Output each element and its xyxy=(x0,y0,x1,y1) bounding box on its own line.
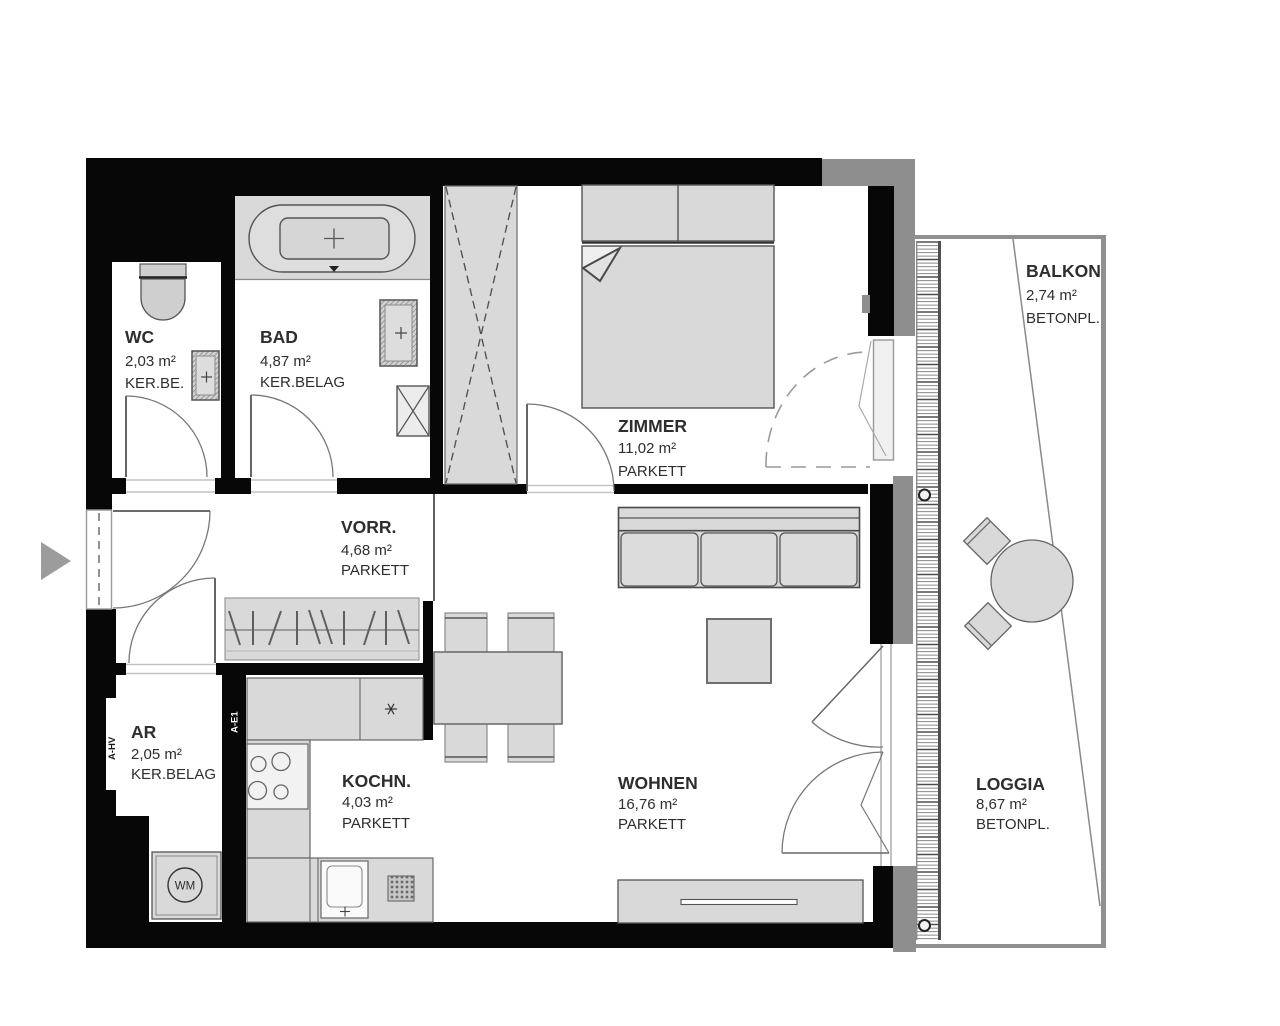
svg-text:PARKETT: PARKETT xyxy=(342,815,410,832)
svg-text:AR: AR xyxy=(131,722,157,742)
svg-text:VORR.: VORR. xyxy=(341,517,396,537)
svg-text:WM: WM xyxy=(175,881,195,893)
svg-text:PARKETT: PARKETT xyxy=(618,463,686,480)
svg-text:KOCHN.: KOCHN. xyxy=(342,771,411,791)
svg-text:2,05 m²: 2,05 m² xyxy=(131,746,182,763)
svg-text:KER.BELAG: KER.BELAG xyxy=(260,374,345,391)
svg-text:LOGGIA: LOGGIA xyxy=(976,774,1045,794)
svg-text:8,67 m²: 8,67 m² xyxy=(976,796,1027,813)
svg-text:A-E1: A-E1 xyxy=(230,711,241,733)
svg-text:BAD: BAD xyxy=(260,327,298,347)
svg-text:WC: WC xyxy=(125,327,155,347)
svg-text:KER.BE.: KER.BE. xyxy=(125,375,184,392)
svg-text:WOHNEN: WOHNEN xyxy=(618,773,698,793)
svg-text:2,03 m²: 2,03 m² xyxy=(125,353,176,370)
svg-text:4,87 m²: 4,87 m² xyxy=(260,353,311,370)
svg-text:A-HV: A-HV xyxy=(107,736,118,760)
svg-text:PARKETT: PARKETT xyxy=(341,562,409,579)
svg-text:PARKETT: PARKETT xyxy=(618,816,686,833)
svg-text:4,68 m²: 4,68 m² xyxy=(341,542,392,559)
svg-text:KER.BELAG: KER.BELAG xyxy=(131,766,216,783)
svg-text:BETONPL.: BETONPL. xyxy=(1026,310,1100,327)
svg-text:16,76 m²: 16,76 m² xyxy=(618,796,677,813)
svg-text:ZIMMER: ZIMMER xyxy=(618,416,687,436)
svg-text:BALKON: BALKON xyxy=(1026,261,1101,281)
svg-text:4,03 m²: 4,03 m² xyxy=(342,794,393,811)
svg-text:BETONPL.: BETONPL. xyxy=(976,816,1050,833)
svg-text:2,74 m²: 2,74 m² xyxy=(1026,287,1077,304)
svg-text:11,02 m²: 11,02 m² xyxy=(618,440,676,457)
